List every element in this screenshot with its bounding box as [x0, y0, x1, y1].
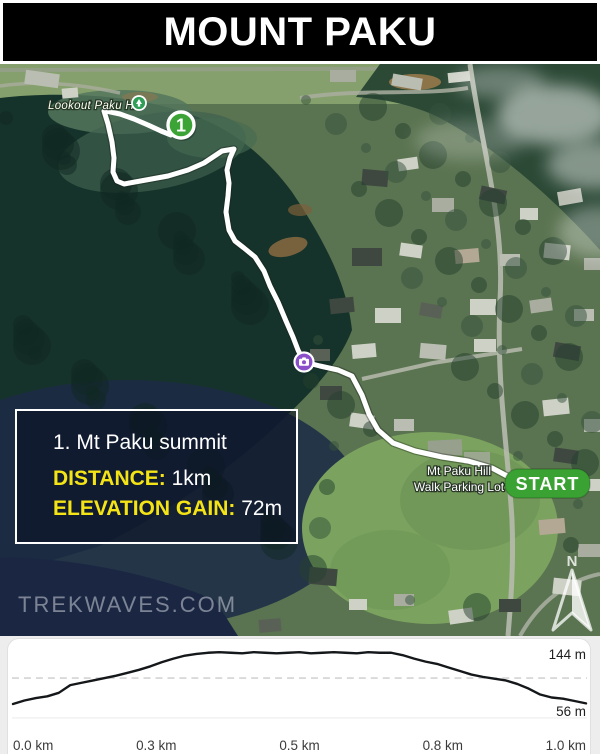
house [432, 198, 454, 212]
satellite-map: Lookout Paku Hill Mt Paku Hill Walk Park… [0, 64, 600, 636]
page-title: MOUNT PAKU [163, 10, 436, 55]
tree [541, 287, 551, 297]
forest-texture [231, 271, 245, 285]
svg-text:START: START [516, 474, 580, 494]
house [329, 297, 354, 314]
tree [327, 391, 355, 419]
forest-texture [13, 315, 33, 335]
ymax-label: 144 m [549, 647, 586, 662]
lookout-label: Lookout Paku Hill [48, 100, 143, 112]
distance-value: 1km [172, 467, 212, 490]
elevation-value: 72m [241, 497, 282, 520]
tree [497, 345, 507, 355]
svg-text:1: 1 [176, 116, 186, 136]
elevation-row: ELEVATION GAIN: 72m [53, 494, 296, 524]
title-bar: MOUNT PAKU [3, 3, 597, 61]
start-badge[interactable]: START [505, 469, 590, 498]
house [394, 419, 414, 431]
house [499, 599, 521, 612]
tree [309, 517, 331, 539]
distance-label: DISTANCE: [53, 467, 166, 490]
x-tick-label: 0.3 km [136, 738, 176, 753]
tree [461, 315, 483, 337]
house [520, 208, 538, 220]
house [419, 343, 446, 360]
tree [487, 383, 503, 399]
forest-texture [158, 212, 196, 250]
tree [395, 123, 411, 139]
tree [361, 143, 371, 153]
x-axis-ticks: 0.0 km0.3 km0.5 km0.8 km1.0 km [13, 738, 586, 753]
house [538, 518, 565, 535]
x-tick-label: 0.5 km [279, 738, 319, 753]
tree [563, 537, 579, 553]
house [352, 248, 382, 266]
tree [521, 363, 543, 385]
tree [301, 95, 311, 105]
tree [455, 171, 471, 187]
elevation-profile-panel: 144 m 56 m 0.0 km0.3 km0.5 km0.8 km1.0 k… [7, 638, 591, 754]
trail-infographic: MOUNT PAKU [0, 0, 600, 754]
tree [565, 305, 587, 327]
house [470, 299, 496, 315]
house [349, 599, 367, 610]
tree [471, 277, 487, 293]
tree [405, 595, 415, 605]
tree [319, 479, 335, 495]
park-tree-poi-icon[interactable] [132, 96, 146, 110]
forest-texture [71, 359, 97, 385]
forest-texture [42, 124, 68, 150]
elevation-label: ELEVATION GAIN: [53, 497, 235, 520]
tree [445, 209, 467, 231]
tree [513, 451, 523, 461]
house [258, 618, 281, 633]
tree [329, 441, 339, 451]
house [578, 544, 600, 557]
tree [557, 393, 567, 403]
tree [411, 229, 427, 245]
tree [325, 113, 347, 135]
svg-text:Mt Paku Hill: Mt Paku Hill [427, 464, 491, 478]
tree [481, 239, 491, 249]
summit-marker-1[interactable]: 1 [168, 112, 197, 141]
house [584, 258, 600, 270]
tree [351, 181, 367, 197]
x-tick-label: 0.0 km [13, 738, 53, 753]
tree [375, 199, 403, 227]
photo-camera-marker-icon[interactable] [295, 353, 314, 372]
distance-row: DISTANCE: 1km [53, 464, 296, 494]
tree [451, 353, 479, 381]
ymin-label: 56 m [556, 704, 586, 719]
tree [359, 93, 387, 121]
tree [303, 373, 319, 389]
tree [385, 161, 407, 183]
tree [547, 431, 563, 447]
tree [313, 335, 323, 345]
svg-text:N: N [567, 553, 578, 570]
tree [511, 401, 539, 429]
tree [555, 343, 583, 371]
watermark: TREKWAVES.COM [18, 592, 237, 617]
house [351, 343, 376, 359]
house [330, 70, 356, 82]
x-tick-label: 0.8 km [423, 738, 463, 753]
svg-text:Walk Parking Lot: Walk Parking Lot [414, 480, 505, 494]
tree [463, 593, 491, 621]
tree [429, 103, 451, 125]
x-tick-label: 1.0 km [546, 738, 586, 753]
route-info-box: 1. Mt Paku summit DISTANCE: 1km ELEVATIO… [15, 409, 298, 544]
tree [479, 189, 507, 217]
tree [435, 247, 463, 275]
route-name: 1. Mt Paku summit [53, 431, 296, 455]
house [375, 308, 401, 323]
tree [437, 297, 447, 307]
tree [421, 191, 431, 201]
tree [495, 295, 523, 323]
house [62, 87, 79, 98]
tree [505, 257, 527, 279]
tree [299, 555, 327, 583]
tree [515, 219, 531, 235]
tree [531, 325, 547, 341]
house [474, 339, 496, 352]
tree [401, 267, 423, 289]
tree [573, 499, 583, 509]
